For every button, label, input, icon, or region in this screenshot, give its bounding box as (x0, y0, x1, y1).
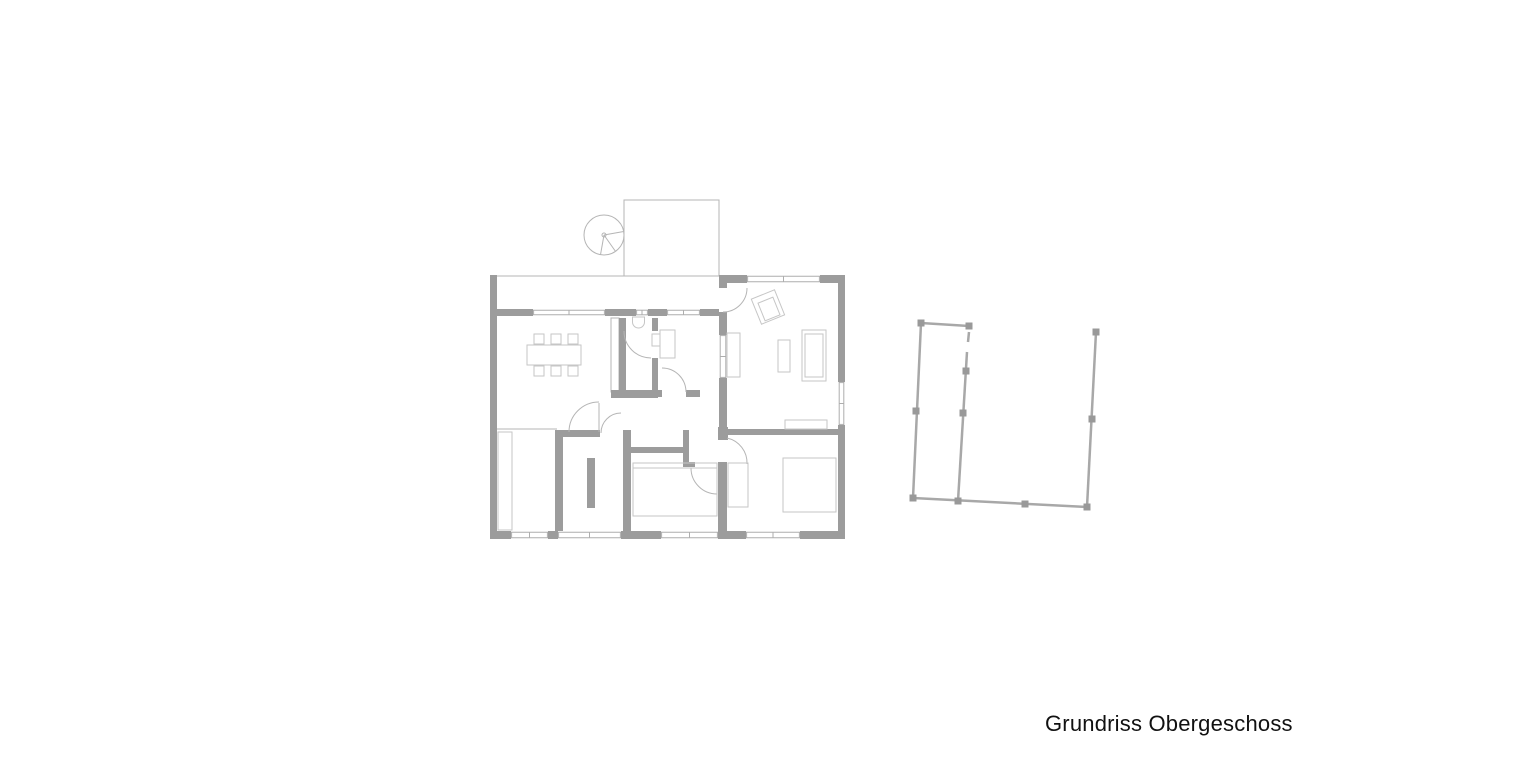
hall-left-wall (623, 430, 631, 531)
railing-post (966, 323, 973, 330)
chair (534, 334, 544, 344)
office-bottom-wall-b (686, 390, 700, 397)
sofa-inner (805, 334, 823, 377)
railing-post (918, 320, 925, 327)
bedroom-wardrobe (728, 463, 748, 507)
outer-wall-bottom-4 (718, 531, 746, 539)
hall-middle-wall (631, 447, 683, 453)
armchair-rotated (751, 290, 784, 324)
wc-right-wall-b (652, 358, 658, 390)
floor-plan-svg (0, 0, 1540, 770)
hall-middle-vertical (683, 430, 689, 467)
closet-top-wall (557, 430, 600, 437)
outer-wall-top-right-a (719, 275, 747, 283)
pocket-wall (611, 318, 619, 392)
outer-wall-right-upper (838, 277, 845, 382)
door-middle-room (691, 468, 717, 494)
outer-wall-left (490, 275, 497, 538)
bathtub (633, 463, 717, 516)
toilet (633, 317, 645, 328)
office-desk (660, 330, 675, 358)
dining-table (527, 345, 581, 365)
door-terrace-living (723, 288, 747, 312)
office-chair (652, 334, 660, 346)
door-hall (601, 413, 621, 433)
upper-wall-c (648, 309, 667, 316)
living-left-wall-c (719, 378, 727, 430)
door-wc (624, 331, 651, 358)
railing-post (1022, 501, 1029, 508)
door-office (662, 368, 686, 392)
coffee-table (778, 340, 790, 372)
rail-inner-stub (968, 332, 969, 342)
living-left-wall-b (719, 312, 727, 335)
living-left-wall-a (719, 283, 727, 288)
upper-wall-b (605, 309, 636, 316)
chair (568, 366, 578, 376)
stair-room-partition (587, 458, 595, 508)
outer-wall-bottom-3 (621, 531, 661, 539)
bedroom-left-wall (718, 462, 727, 531)
armchair-rotated-seat (758, 297, 780, 321)
office-bottom-wall-a (658, 390, 662, 397)
wardrobe-closet (498, 432, 512, 530)
drawing-caption: Grundriss Obergeschoss (1045, 711, 1293, 737)
sofa-outer (802, 330, 826, 381)
pocket-wall-bar (619, 318, 626, 390)
upper-wall-a (497, 309, 533, 316)
bedroom-top-wall (727, 429, 838, 435)
bed (783, 458, 836, 512)
stair-room-left-wall (555, 430, 563, 531)
door-dining (569, 402, 599, 432)
outer-wall-right-lower (838, 425, 845, 539)
bedroom-door-post (718, 427, 728, 440)
railing-post (1089, 416, 1096, 423)
railing-post (1093, 329, 1100, 336)
door-bedroom (727, 438, 747, 464)
chair (534, 366, 544, 376)
rail-top (921, 323, 969, 326)
upper-wall-d (700, 309, 719, 316)
drawing-sheet: Grundriss Obergeschoss (0, 0, 1540, 770)
railing-post (913, 408, 920, 415)
rail-bottom (913, 498, 1087, 507)
terrace-outline (624, 200, 719, 276)
railing-post (1084, 504, 1091, 511)
railing-post (963, 368, 970, 375)
railing-post (910, 495, 917, 502)
outer-wall-top-right-b (820, 275, 845, 283)
wc-right-wall-a (652, 318, 658, 331)
outer-wall-bottom-1 (490, 531, 511, 539)
railing-post (960, 410, 967, 417)
chair (551, 366, 561, 376)
railing-post (955, 498, 962, 505)
living-shelf (727, 333, 740, 377)
sideboard (785, 420, 827, 429)
chair (568, 334, 578, 344)
outer-wall-bottom-2 (548, 531, 558, 539)
chair (551, 334, 561, 344)
wc-bottom-wall (611, 390, 658, 398)
